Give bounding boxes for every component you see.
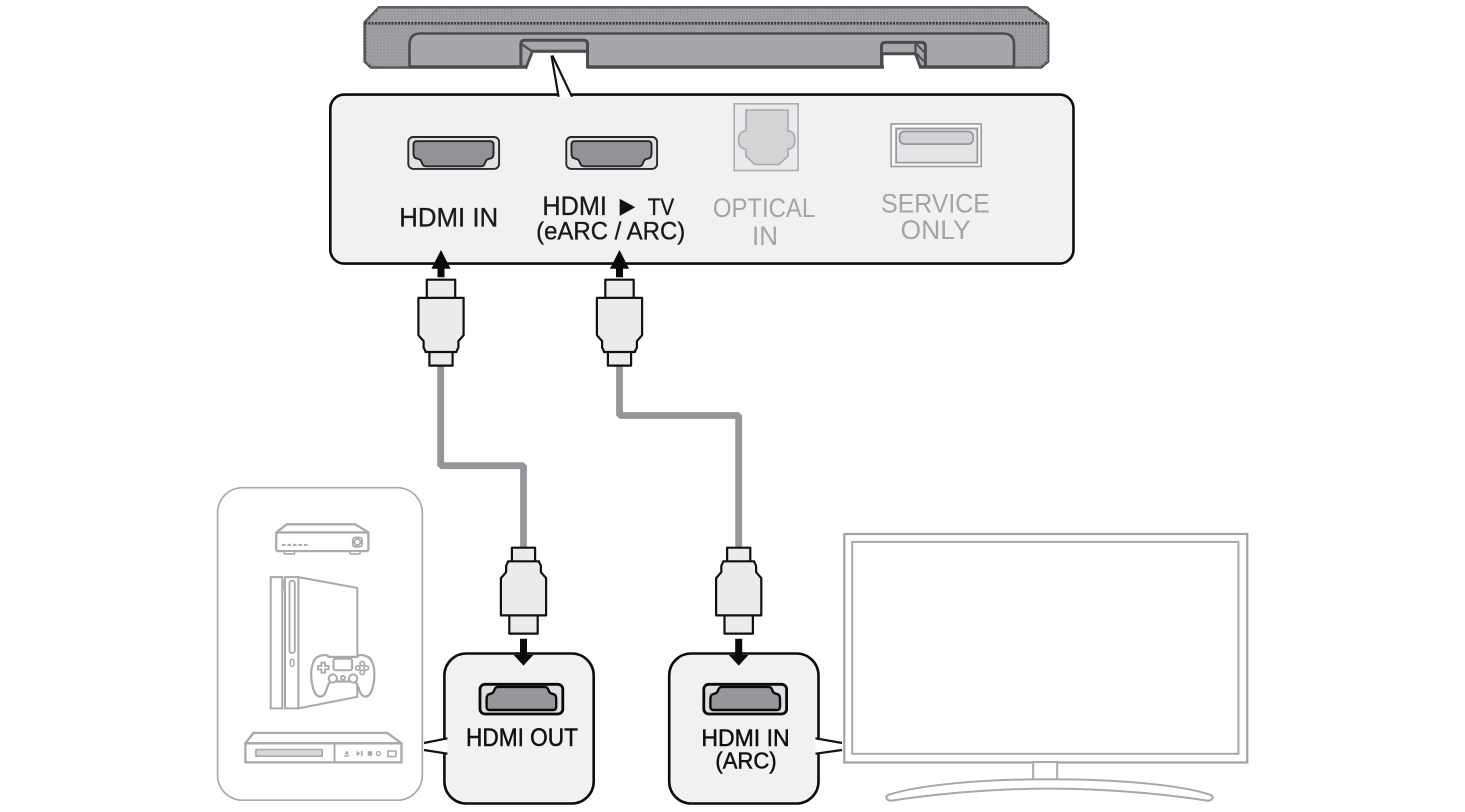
svg-text:(ARC): (ARC) — [715, 748, 776, 774]
svg-text:SERVICE: SERVICE — [881, 189, 990, 219]
svg-text:IN: IN — [752, 221, 778, 251]
svg-text:HDMI IN: HDMI IN — [399, 203, 498, 233]
svg-text:HDMI OUT: HDMI OUT — [466, 724, 578, 752]
svg-text:(eARC / ARC): (eARC / ARC) — [536, 218, 685, 246]
svg-text:ONLY: ONLY — [901, 215, 971, 245]
svg-text:HDMI: HDMI — [542, 191, 607, 221]
svg-text:OPTICAL: OPTICAL — [713, 193, 815, 223]
